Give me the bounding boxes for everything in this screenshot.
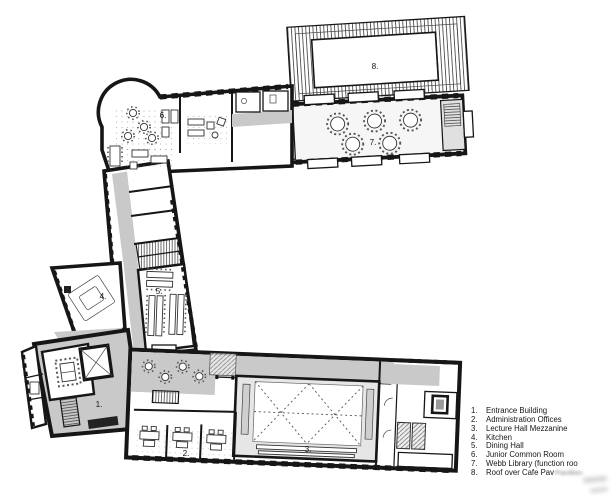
bay-window [307, 158, 337, 169]
boardroom-table [110, 146, 120, 166]
dining-table [156, 296, 163, 336]
room-number-label: 4. [100, 292, 107, 301]
dining-table [147, 271, 173, 278]
side-table [212, 132, 218, 138]
junction-room [236, 92, 260, 112]
service-room [381, 364, 440, 386]
dining-table [148, 295, 155, 335]
dining-table [177, 294, 184, 334]
legend-item: 8.Roof over Cafe PavPavilion [471, 469, 582, 478]
bay-window [351, 156, 381, 167]
legend: 1.Entrance Building2.Administration Offi… [471, 407, 582, 478]
ramp [209, 353, 236, 376]
admin-lecture-wing [126, 350, 460, 471]
dining-table [169, 294, 176, 334]
entrance-stair [60, 397, 80, 427]
room-number-label: 7. [370, 138, 377, 147]
roof-flat-area [312, 32, 439, 87]
sofa [188, 119, 204, 125]
bay-window [399, 153, 429, 164]
legend-item-label: Roof over Cafe Pav [486, 469, 554, 478]
room-number-label: 5. [156, 287, 163, 296]
sofa [132, 150, 148, 157]
bathroom [412, 423, 426, 450]
entrance-skylight [80, 345, 112, 380]
floor-plan-canvas: 1.2.3.4.5.6.7.8. 1.Entrance Building2.Ad… [0, 0, 616, 500]
sofa [171, 110, 178, 123]
sofa [188, 130, 204, 136]
service-room [398, 452, 453, 468]
library-wing [278, 87, 475, 170]
junction-room [263, 91, 288, 111]
legend-watermark-smudge: Pavilion [555, 469, 582, 477]
bay-window [348, 92, 378, 103]
entrance-lobby [131, 352, 217, 395]
armchair [207, 122, 214, 129]
room-number-label: 6. [160, 111, 167, 120]
bay-window [394, 89, 424, 100]
bathroom [397, 422, 411, 449]
entrance-building [22, 330, 142, 436]
legend-item-number: 8. [471, 469, 486, 478]
room-number-label: 2. [183, 449, 190, 458]
room-number-label: 3. [305, 445, 312, 454]
sofa [151, 156, 167, 163]
annex-table [30, 382, 39, 394]
bay-window [304, 94, 334, 105]
lobby-stair [152, 390, 178, 403]
armchair [130, 162, 137, 169]
room-number-label: 1. [96, 400, 103, 409]
roof-pavilion [287, 16, 469, 101]
library-east-stair [441, 99, 475, 151]
sofa [162, 127, 169, 137]
room-number-label: 8. [372, 62, 379, 71]
